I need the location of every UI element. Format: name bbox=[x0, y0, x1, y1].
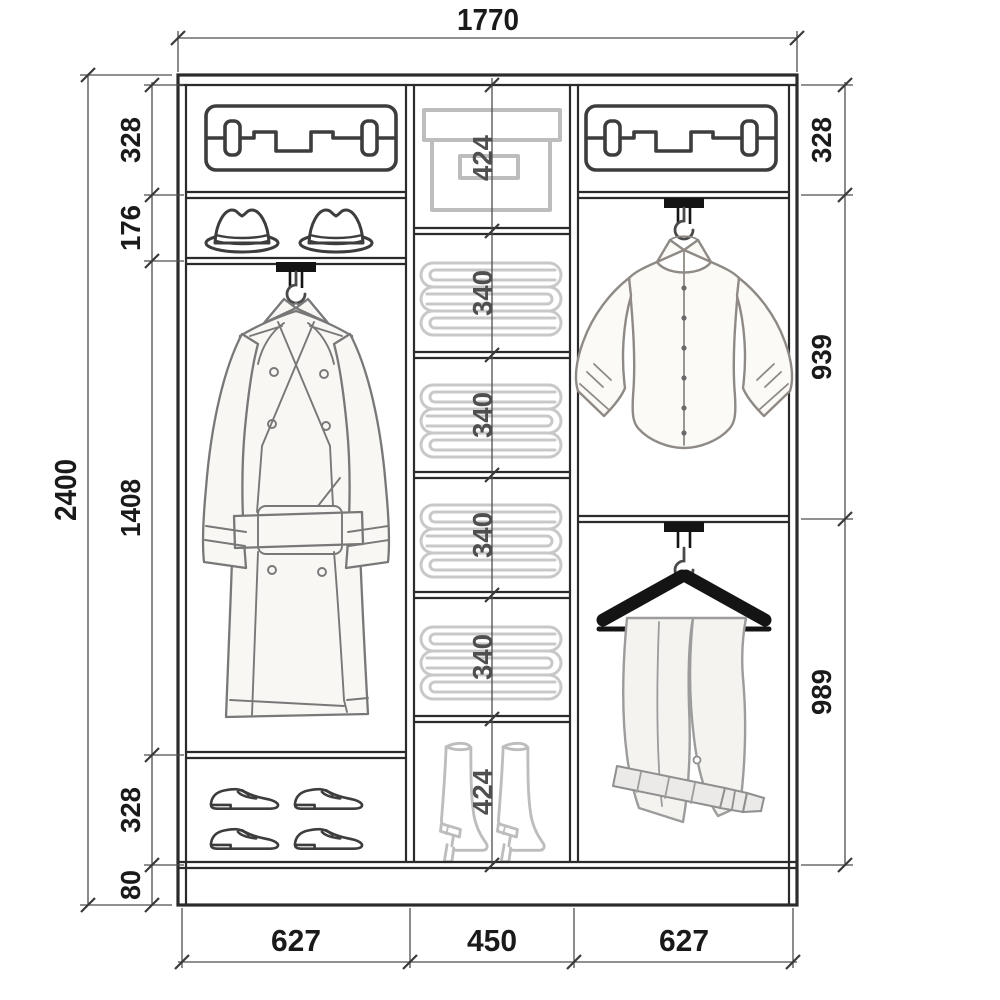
dim-label: 989 bbox=[806, 669, 837, 715]
wardrobe-dimension-diagram: 1770 2400 328 176 1408 bbox=[0, 0, 1000, 1000]
dim-label: 340 bbox=[467, 512, 498, 558]
hanger-rail-bracket bbox=[276, 262, 316, 272]
dimension-left-segments: 328 176 1408 328 80 bbox=[115, 78, 184, 912]
coat-on-hanger-icon bbox=[203, 262, 389, 717]
dim-label: 328 bbox=[115, 787, 146, 833]
dim-label-total-height: 2400 bbox=[48, 459, 83, 521]
dim-label: 627 bbox=[271, 923, 321, 958]
dim-label: 424 bbox=[467, 769, 498, 815]
dim-label: 328 bbox=[806, 117, 837, 163]
dim-label: 939 bbox=[806, 334, 837, 380]
dim-label: 1408 bbox=[115, 479, 146, 537]
dimension-right-segments: 328 939 989 bbox=[801, 78, 853, 872]
wooden-hanger-icon bbox=[603, 576, 682, 620]
dim-label: 627 bbox=[659, 923, 709, 958]
dim-label: 80 bbox=[115, 870, 146, 900]
dim-label: 176 bbox=[115, 205, 146, 251]
suitcase-icon bbox=[206, 106, 396, 170]
hanger-rail-bracket bbox=[664, 522, 704, 532]
diagram-svg: 1770 2400 328 176 1408 bbox=[0, 0, 1000, 1000]
hanger-rail-bracket bbox=[664, 198, 704, 208]
shoes-icon bbox=[211, 789, 362, 848]
suitcase-icon bbox=[586, 106, 776, 170]
trousers-on-hanger-icon bbox=[599, 522, 769, 822]
dim-label: 328 bbox=[115, 117, 146, 163]
dimension-bottom-widths: 627 450 627 bbox=[175, 908, 800, 969]
dimension-top-width: 1770 bbox=[171, 2, 804, 72]
dim-label: 450 bbox=[467, 923, 517, 958]
dim-label: 424 bbox=[467, 135, 498, 181]
shirt-on-hanger-icon bbox=[576, 198, 792, 448]
dim-label: 340 bbox=[467, 392, 498, 438]
dim-label-total-width: 1770 bbox=[457, 2, 519, 37]
hats-icon bbox=[206, 210, 372, 252]
dim-label: 340 bbox=[467, 634, 498, 680]
dim-label: 340 bbox=[467, 270, 498, 316]
